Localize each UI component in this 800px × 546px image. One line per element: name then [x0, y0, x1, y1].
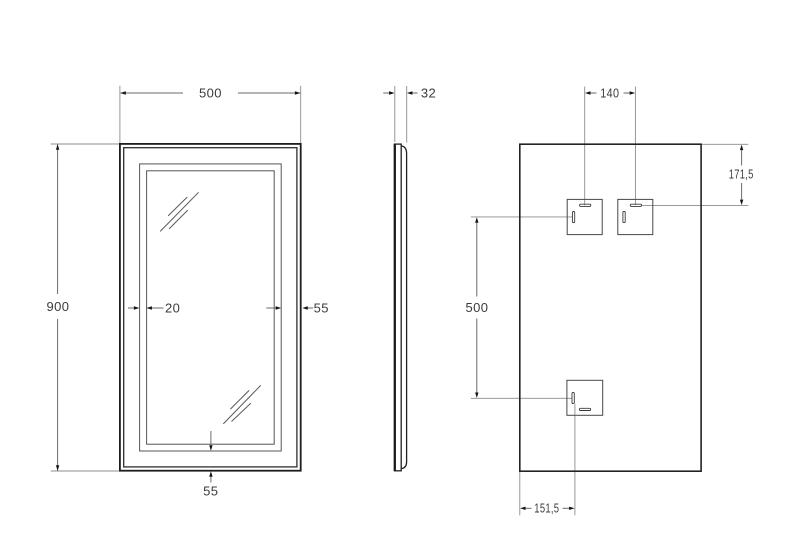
- svg-text:500: 500: [199, 85, 222, 100]
- svg-text:32: 32: [421, 85, 436, 100]
- svg-text:900: 900: [47, 299, 70, 314]
- svg-text:55: 55: [203, 484, 218, 499]
- svg-text:171,5: 171,5: [729, 167, 754, 182]
- svg-text:55: 55: [314, 300, 329, 315]
- svg-text:500: 500: [466, 300, 489, 315]
- svg-text:140: 140: [600, 85, 619, 100]
- svg-text:151,5: 151,5: [534, 501, 559, 516]
- svg-text:20: 20: [165, 300, 180, 315]
